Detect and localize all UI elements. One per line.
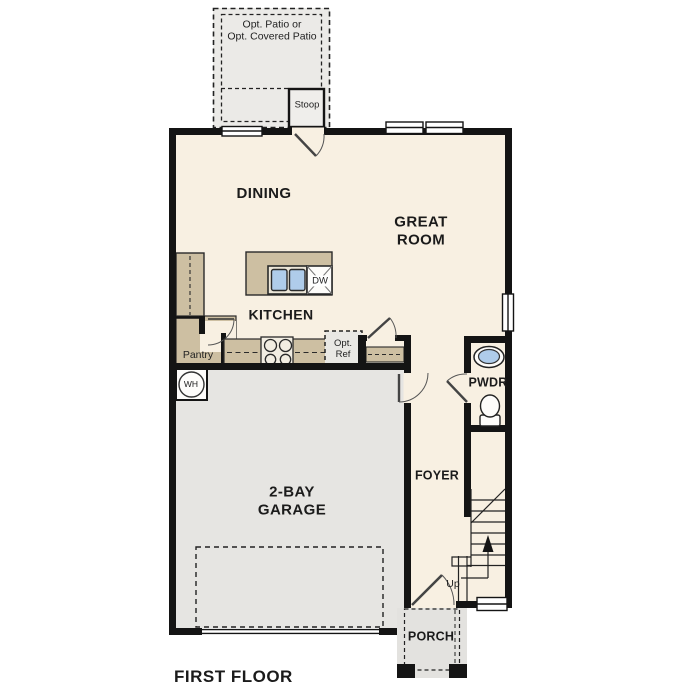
opt-ref-label: Opt. Ref — [334, 338, 352, 360]
patio-label: Opt. Patio or Opt. Covered Patio — [227, 19, 316, 44]
foyer-label: FOYER — [415, 469, 459, 484]
dishwasher-label: DW — [311, 275, 329, 286]
bathroom-sink — [474, 347, 504, 368]
toilet — [480, 395, 500, 426]
plan-title: FIRST FLOOR — [174, 667, 293, 687]
window-great-room-1 — [386, 122, 423, 134]
coat-closet — [366, 341, 404, 363]
kitchen-label: KITCHEN — [248, 307, 313, 324]
porch-post — [397, 664, 415, 678]
up-label: Up — [446, 578, 459, 590]
garage-door-opening — [202, 628, 379, 635]
window-great-room-2 — [426, 122, 463, 134]
kitchen-island — [246, 252, 332, 295]
porch-post — [449, 664, 467, 678]
sink-basin — [272, 270, 288, 291]
powder-label: PWDR — [469, 376, 508, 391]
window-dining — [222, 127, 262, 137]
porch-label: PORCH — [408, 630, 454, 645]
stove — [261, 337, 293, 367]
great-room-label: GREAT ROOM — [394, 213, 447, 248]
garage-label: 2-BAY GARAGE — [258, 483, 326, 518]
dining-label: DINING — [237, 185, 292, 203]
pantry-label: Pantry — [183, 349, 213, 361]
window-right-wall — [503, 294, 514, 331]
window-bottom — [477, 598, 507, 611]
floor-plan: Opt. Patio or Opt. Covered Patio Stoop D… — [0, 0, 687, 687]
sink-basin — [290, 270, 306, 291]
water-heater-label: WH — [184, 379, 198, 389]
stoop-label: Stoop — [295, 99, 320, 110]
